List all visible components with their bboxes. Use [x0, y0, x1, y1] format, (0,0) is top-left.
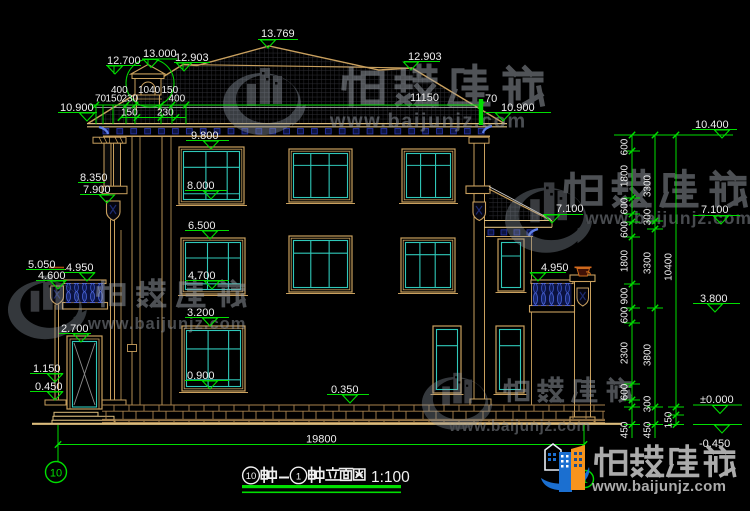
svg-text:600: 600 [620, 306, 631, 323]
svg-text:1040: 1040 [138, 85, 161, 96]
svg-text:230: 230 [157, 108, 174, 119]
svg-text:www.baijunjz.com: www.baijunjz.com [448, 418, 591, 435]
svg-text:300: 300 [643, 395, 654, 412]
svg-text:10: 10 [50, 468, 62, 480]
svg-text:3300: 3300 [643, 174, 654, 197]
svg-text:13.000: 13.000 [143, 48, 177, 60]
svg-text:www.baijunjz.com: www.baijunjz.com [591, 478, 726, 495]
svg-text:1:100: 1:100 [371, 469, 410, 486]
svg-text:±0.000: ±0.000 [700, 394, 734, 406]
svg-text:400: 400 [169, 94, 186, 105]
svg-text:3800: 3800 [643, 343, 654, 366]
svg-text:1: 1 [296, 472, 301, 483]
svg-text:10400: 10400 [664, 253, 675, 281]
svg-text:70: 70 [485, 93, 497, 105]
svg-text:11150: 11150 [410, 92, 439, 104]
svg-text:300: 300 [643, 208, 654, 225]
svg-text:600: 600 [620, 221, 631, 238]
svg-text:7.100: 7.100 [701, 204, 729, 216]
svg-text:1800: 1800 [620, 249, 631, 272]
svg-text:600: 600 [620, 197, 631, 214]
svg-text:19800: 19800 [306, 434, 337, 446]
svg-text:1800: 1800 [620, 164, 631, 187]
svg-text:13.769: 13.769 [261, 28, 295, 40]
svg-text:450: 450 [620, 421, 631, 438]
svg-text:600: 600 [620, 383, 631, 400]
svg-text:150: 150 [121, 108, 138, 119]
svg-text:150: 150 [106, 94, 123, 105]
svg-text:450: 450 [643, 421, 654, 438]
svg-text:230: 230 [122, 94, 139, 105]
svg-text:150: 150 [664, 411, 675, 428]
svg-text:10: 10 [246, 471, 257, 482]
svg-text:900: 900 [620, 287, 631, 304]
svg-text:-0.450: -0.450 [699, 438, 730, 450]
svg-text:600: 600 [620, 138, 631, 155]
svg-text:2300: 2300 [620, 341, 631, 364]
svg-text:3300: 3300 [643, 251, 654, 274]
svg-text:7.100: 7.100 [556, 203, 584, 215]
